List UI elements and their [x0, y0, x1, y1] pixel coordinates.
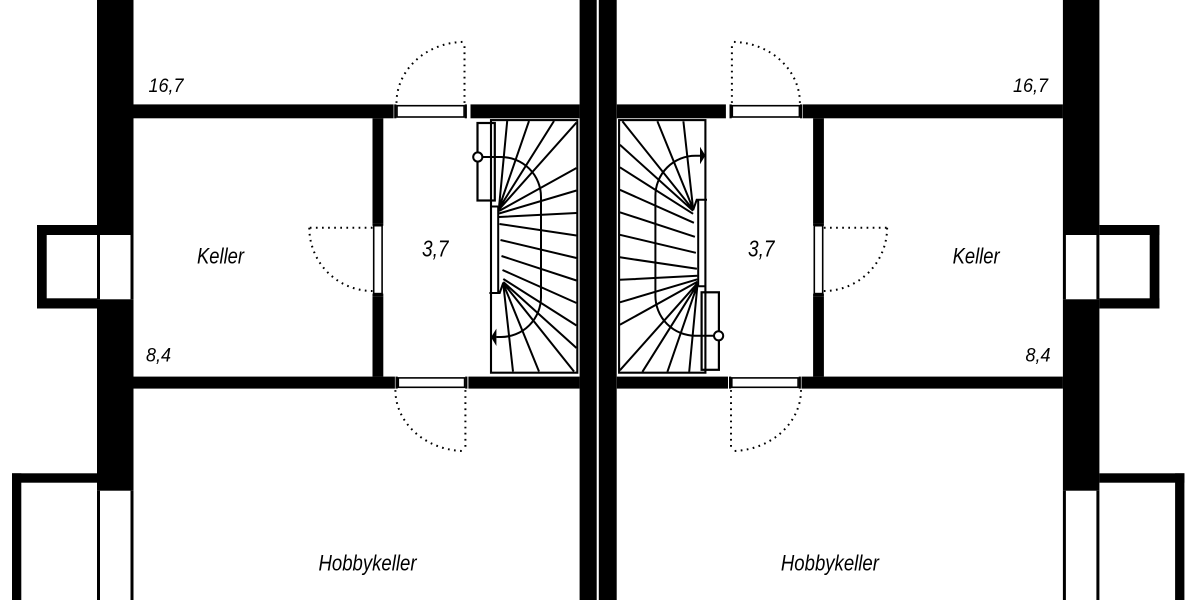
svg-text:Keller: Keller — [197, 243, 245, 268]
svg-text:16,7: 16,7 — [1013, 76, 1049, 97]
svg-text:Hobbykeller: Hobbykeller — [781, 550, 880, 575]
svg-text:3,7: 3,7 — [748, 236, 775, 262]
svg-text:3,7: 3,7 — [422, 236, 449, 262]
svg-text:16,7: 16,7 — [149, 76, 185, 97]
svg-text:8,4: 8,4 — [1026, 346, 1051, 367]
svg-text:8,4: 8,4 — [146, 346, 171, 367]
svg-text:Keller: Keller — [953, 243, 1001, 268]
svg-text:Hobbykeller: Hobbykeller — [319, 550, 418, 575]
